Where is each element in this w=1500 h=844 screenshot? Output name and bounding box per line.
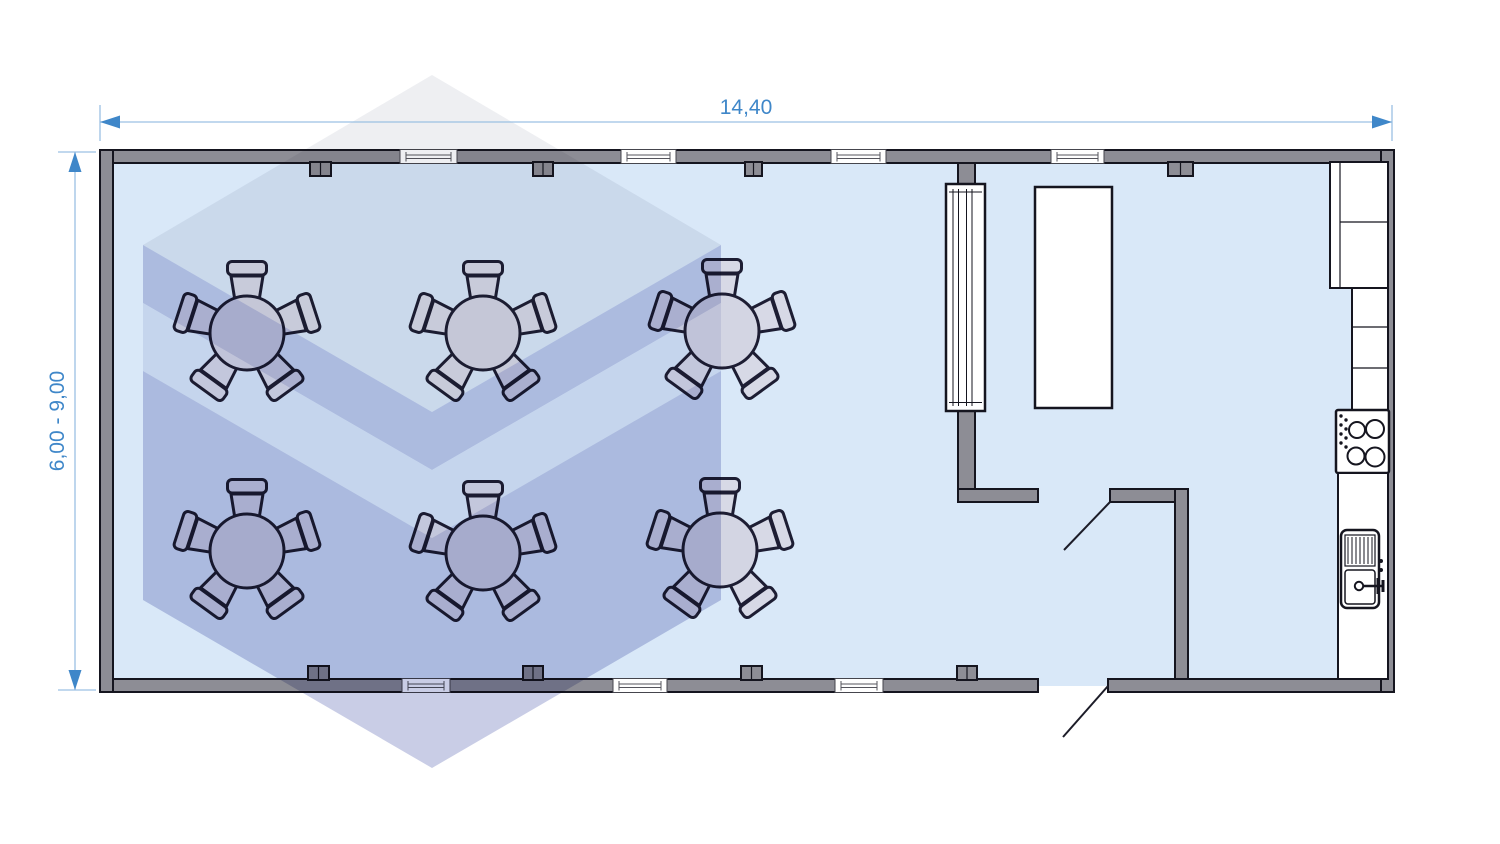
floor-plan-page: 14,40 6,00 - 9,00 (0, 0, 1500, 844)
glazed-partition (946, 184, 985, 411)
exterior-wall-bottom-right (1108, 679, 1394, 692)
height-dimension-label: 6,00 - 9,00 (46, 371, 69, 471)
sink (1341, 530, 1383, 608)
width-dimension-label: 14,40 (720, 96, 773, 119)
kitchen (1330, 162, 1389, 679)
dimension-arrow-top (69, 152, 82, 172)
burner (1366, 448, 1385, 467)
dimension-arrow-bottom (69, 670, 82, 690)
wall-cabinet-block (1330, 162, 1388, 288)
tall-cabinet-run (1352, 288, 1388, 411)
stove (1336, 410, 1389, 473)
window (621, 150, 676, 164)
entrance-door-swing (1063, 686, 1108, 737)
burner (1348, 448, 1365, 465)
window (613, 679, 667, 693)
burner (1349, 422, 1365, 438)
dimension-arrow-right (1372, 116, 1392, 129)
serving-table (1035, 187, 1112, 408)
exterior-wall-left (100, 150, 113, 692)
window (835, 679, 883, 693)
floor-plan-canvas: 14,40 6,00 - 9,00 (0, 0, 1500, 844)
window (831, 150, 886, 164)
window (1051, 150, 1104, 164)
dimension-arrow-left (100, 116, 120, 129)
burner (1366, 420, 1384, 438)
